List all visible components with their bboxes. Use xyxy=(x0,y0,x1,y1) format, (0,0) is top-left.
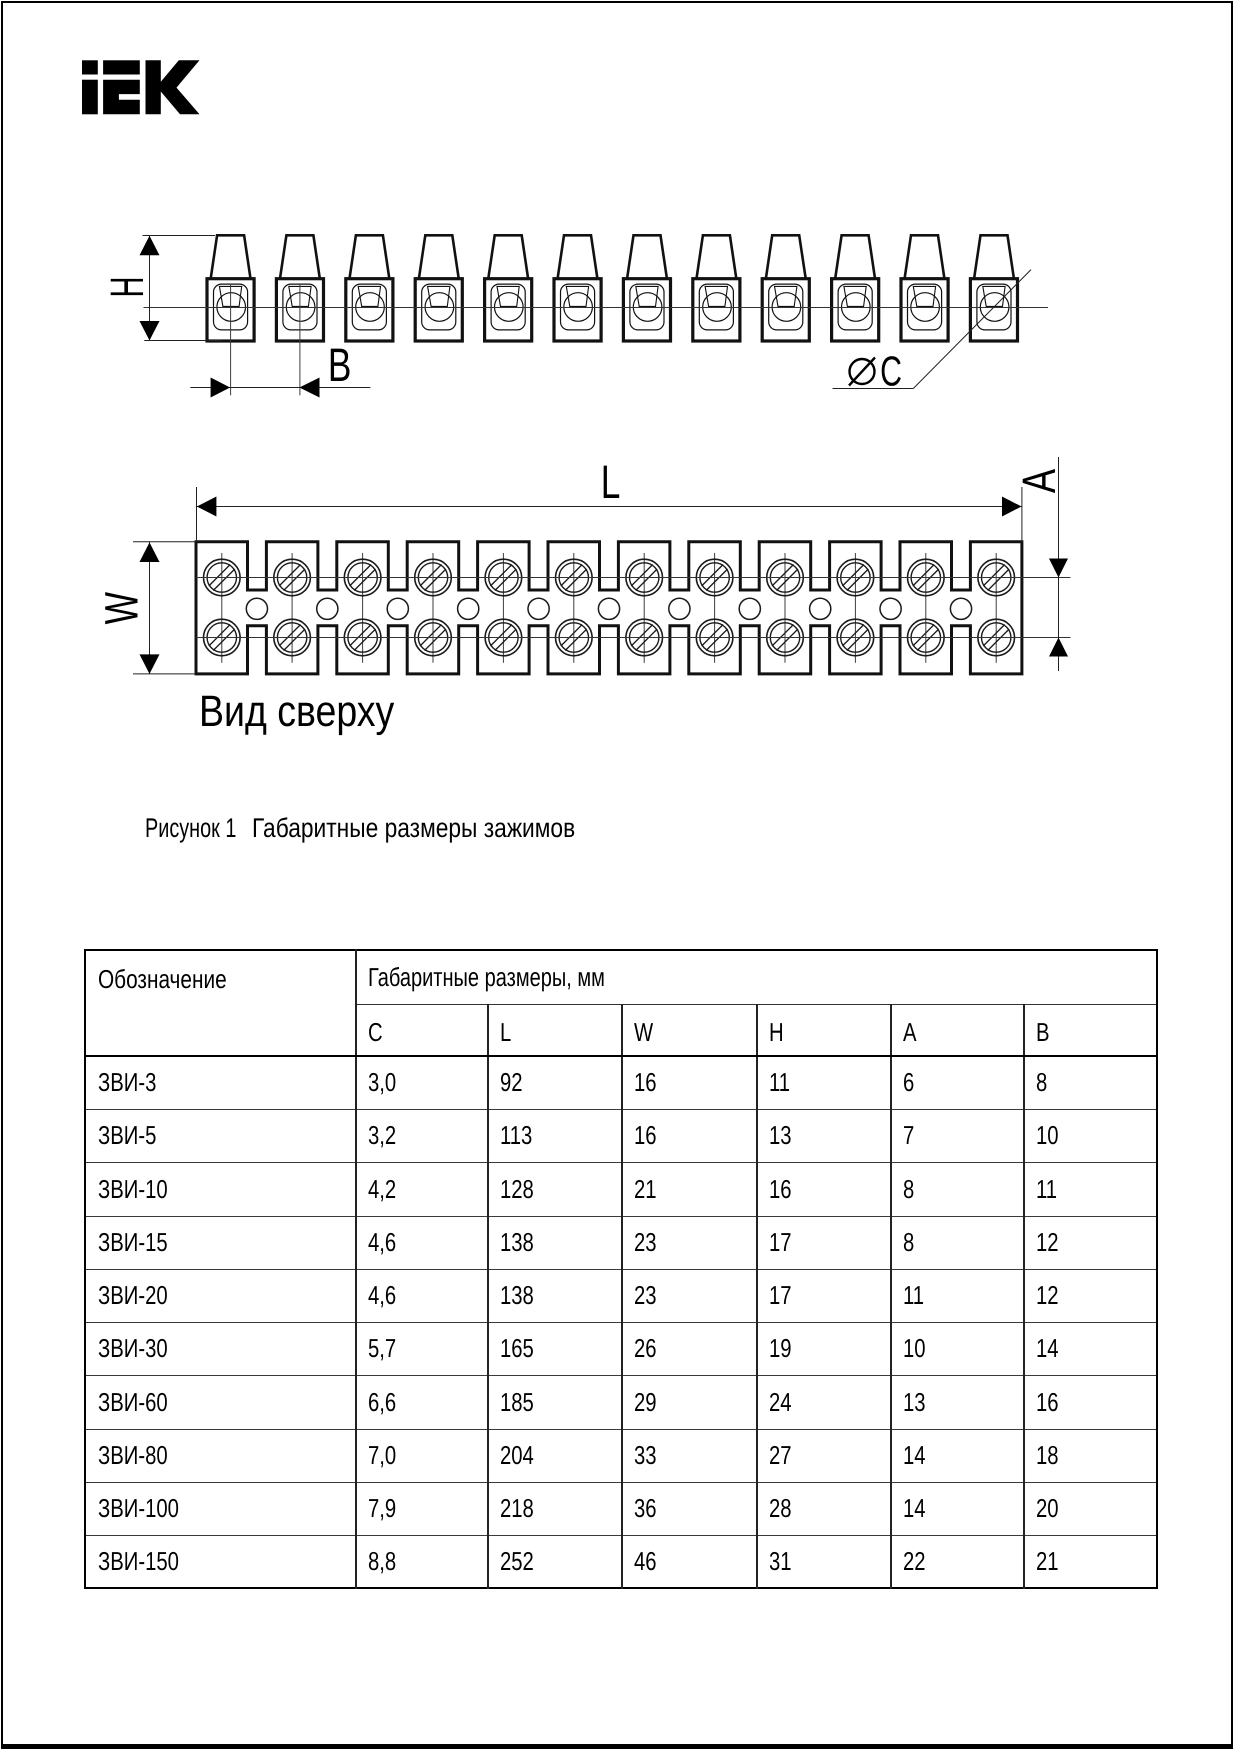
svg-text:C: C xyxy=(880,348,902,395)
svg-text:W: W xyxy=(95,592,148,625)
svg-text:L: L xyxy=(601,455,621,508)
svg-text:B: B xyxy=(328,338,352,391)
svg-text:A: A xyxy=(1012,468,1065,493)
svg-text:H: H xyxy=(100,276,153,297)
